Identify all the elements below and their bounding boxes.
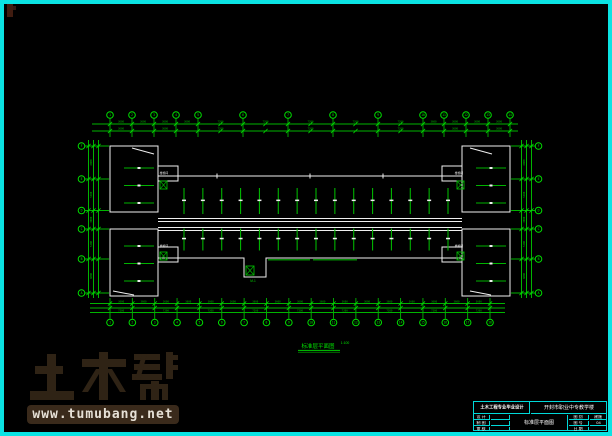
titleblock-meta-label: 图 号	[569, 421, 589, 426]
bottom-axis-label: 6	[221, 321, 223, 325]
dim-text: 3600	[431, 299, 438, 303]
titleblock-project-cell: 开封市职业中专教学楼	[531, 402, 606, 414]
dim-text: 3600	[319, 299, 326, 303]
dim-text: 3600	[230, 299, 237, 303]
bottom-axis-label: 2	[131, 321, 133, 325]
door-dash	[239, 200, 243, 202]
top-axis-label: 4	[175, 113, 177, 117]
stair-marker	[490, 185, 493, 187]
bottom-axis-label: 18	[488, 321, 492, 325]
bottom-axis-label: 4	[176, 321, 178, 325]
door-dash	[201, 200, 205, 202]
stair-tower-bottom-right	[462, 229, 510, 296]
stair-label-tr: 楼梯间	[455, 171, 464, 175]
dim-text: 7200	[431, 308, 438, 312]
dim-text: 7200	[342, 308, 349, 312]
dim-text: 3600	[162, 120, 169, 124]
top-axis-label: 12	[464, 113, 468, 117]
dim-text: 3600	[386, 299, 393, 303]
glyph-bang	[132, 352, 178, 400]
door-dash	[352, 200, 356, 202]
dim-text: 3600	[140, 120, 147, 124]
dim-text: 7200	[386, 308, 393, 312]
dim-text: 7200	[262, 120, 269, 124]
dim-text: 7200	[397, 127, 404, 131]
door-dash	[220, 238, 224, 240]
bottom-axis-label: 7	[243, 321, 245, 325]
titleblock-drawing-name-cell: 标准层平面图	[511, 415, 568, 430]
titleblock-meta-label: 日 期	[569, 427, 589, 432]
dim-text: 3600	[275, 299, 282, 303]
dim-text: 3600	[252, 299, 259, 303]
corner-logo-mark	[7, 4, 13, 17]
stair-tower-top-right	[462, 146, 510, 212]
dim-text: 3600	[476, 299, 483, 303]
dim-text: 7200	[252, 308, 259, 312]
dim-text: 3600	[452, 127, 459, 131]
dim-text: 7200	[217, 127, 224, 131]
right-axis-label: B	[538, 257, 540, 261]
dim-text: 6000	[522, 159, 526, 166]
door-dash	[352, 238, 356, 240]
south-wall-with-entrance	[158, 258, 462, 277]
door-dash	[446, 200, 450, 202]
door-dash	[408, 200, 412, 202]
left-axis-label: F	[81, 144, 83, 148]
stair-diagonal-tl	[132, 148, 154, 154]
glyph-tu	[30, 354, 74, 400]
bottom-axis-label: 11	[332, 321, 336, 325]
door-dash	[182, 238, 186, 240]
door-dash	[220, 200, 224, 202]
cad-viewer-screen: 标准层平面图 1:100 楼梯间 楼梯间 楼梯间 楼梯间 M-1 1234567…	[0, 0, 612, 436]
dim-text: 3600	[118, 299, 125, 303]
bottom-axis-label: 8	[266, 321, 268, 325]
stair-label-tl: 楼梯间	[160, 171, 169, 175]
top-axis-label: 5	[197, 113, 199, 117]
right-axis-label: A	[538, 291, 540, 295]
door-dash	[446, 238, 450, 240]
bottom-axis-label: 13	[376, 321, 380, 325]
title-block: 土木工程专业毕业设计 开封市职业中专教学楼 设 计 制 图 审 核 标准层平面图…	[473, 401, 607, 431]
bottom-axis-label: 17	[466, 321, 470, 325]
dim-text: 3600	[452, 120, 459, 124]
dim-text: 3000	[89, 216, 93, 223]
door-dash	[408, 238, 412, 240]
dim-text: 3600	[496, 120, 503, 124]
titleblock-meta-value	[590, 427, 606, 432]
dim-text: 7200	[297, 308, 304, 312]
dim-text: 6000	[522, 273, 526, 280]
right-axis-label: C	[538, 227, 540, 231]
dim-text: 3600	[162, 127, 169, 131]
stair-diagonal-bl	[113, 291, 134, 295]
dim-text: 7200	[397, 120, 404, 124]
titleblock-project: 开封市职业中专教学楼	[544, 405, 594, 410]
door-dash	[333, 200, 337, 202]
door-dash	[389, 238, 393, 240]
titleblock-row-value	[491, 427, 510, 432]
bottom-axis-label: 5	[198, 321, 200, 325]
titleblock-row-label: 设 计	[474, 415, 490, 420]
dim-text: 3600	[163, 299, 170, 303]
titleblock-meta-value: 建施	[590, 415, 606, 420]
stair-marker	[490, 245, 493, 247]
door-dash	[276, 200, 280, 202]
stair-marker	[490, 167, 493, 169]
left-axis-label: A	[81, 291, 83, 295]
dim-text: 3600	[409, 299, 416, 303]
dim-text: 3600	[474, 120, 481, 124]
dim-text: 5400	[89, 191, 93, 198]
building-outline	[110, 146, 510, 296]
dim-text: 7200	[118, 308, 125, 312]
top-axis-label: 14	[508, 113, 512, 117]
titleblock-meta-label: 图 别	[569, 415, 589, 420]
bottom-axis-label: 14	[399, 321, 403, 325]
dim-text: 3600	[453, 299, 460, 303]
dim-text: 3600	[185, 299, 192, 303]
plan-scale: 1:100	[341, 341, 350, 345]
dim-text: 3000	[522, 216, 526, 223]
titleblock-drawing-name: 标准层平面图	[524, 420, 554, 425]
stair-diagonal-tr	[470, 148, 492, 154]
green-details	[268, 260, 357, 353]
dim-text: 7200	[163, 308, 170, 312]
dim-text: 5400	[522, 241, 526, 248]
left-axis-label: D	[81, 209, 83, 213]
stair-tower-top-left	[110, 146, 158, 212]
door-dash	[427, 200, 431, 202]
titleblock-org: 土木工程专业毕业设计	[480, 405, 523, 409]
bottom-axis-label: 9	[288, 321, 290, 325]
right-axis-label: F	[538, 144, 540, 148]
dim-text: 7200	[217, 120, 224, 124]
left-axis-label: C	[81, 227, 83, 231]
stair-label-br: 楼梯间	[455, 244, 464, 248]
top-axis-label: 11	[442, 113, 446, 117]
door-dash	[276, 238, 280, 240]
bottom-axis-label: 1	[109, 321, 111, 325]
dim-text: 3600	[496, 127, 503, 131]
dim-text: 5400	[522, 191, 526, 198]
watermark-url: www.tumubang.net	[32, 407, 173, 422]
door-dash	[371, 200, 375, 202]
dim-text: 3600	[297, 299, 304, 303]
top-axis-label: 1	[109, 113, 111, 117]
dim-text: 3600	[364, 299, 371, 303]
dim-text: 3600	[430, 120, 437, 124]
door-dash	[389, 200, 393, 202]
door-dash	[257, 200, 261, 202]
right-axis-label: E	[538, 177, 540, 181]
door-dash	[314, 238, 318, 240]
top-axis-label: 2	[131, 113, 133, 117]
door-dash	[295, 200, 299, 202]
titleblock-row-label: 审 核	[474, 427, 490, 432]
dim-text: 7200	[307, 127, 314, 131]
entrance-label: M-1	[250, 279, 256, 283]
stair-tower-bottom-left	[110, 229, 158, 296]
dim-text: 7200	[352, 120, 359, 124]
dim-text: 7200	[208, 308, 215, 312]
door-dash	[427, 238, 431, 240]
bottom-axis-label: 15	[421, 321, 425, 325]
titleblock-row-value	[491, 421, 510, 426]
stair-marker	[138, 167, 141, 169]
top-axis-label: 10	[421, 113, 425, 117]
stair-marker	[138, 263, 141, 265]
top-axis-label: 9	[377, 113, 379, 117]
dim-text: 3600	[342, 299, 349, 303]
door-dash	[295, 238, 299, 240]
stair-marker	[490, 202, 493, 204]
top-axis-label: 3	[153, 113, 155, 117]
right-axis-label: D	[538, 209, 540, 213]
bottom-axis-label: 10	[309, 321, 313, 325]
left-axis-label: E	[81, 177, 83, 181]
top-axis-label: 13	[486, 113, 490, 117]
door-dash	[201, 238, 205, 240]
door-dash	[239, 238, 243, 240]
stair-label-bl: 楼梯间	[160, 244, 169, 248]
dim-text: 5400	[89, 241, 93, 248]
stair-marker	[490, 263, 493, 265]
top-axis-label: 6	[242, 113, 244, 117]
watermark-logo	[28, 352, 228, 407]
top-axis-label: 7	[287, 113, 289, 117]
stair-marker	[138, 245, 141, 247]
dim-text: 3600	[118, 127, 125, 131]
door-dash	[314, 200, 318, 202]
bottom-axis-label: 3	[154, 321, 156, 325]
stair-marker	[138, 202, 141, 204]
dim-text: 3600	[118, 120, 125, 124]
titleblock-row-label: 制 图	[474, 421, 490, 426]
stair-marker	[138, 280, 141, 282]
glyph-mu	[82, 352, 126, 400]
door-dash	[371, 238, 375, 240]
watermark-url-bar: www.tumubang.net	[27, 405, 179, 424]
stair-diagonal-br	[470, 291, 491, 295]
plan-title: 标准层平面图	[301, 342, 335, 350]
dim-text: 6000	[89, 159, 93, 166]
bottom-axis-label: 16	[443, 321, 447, 325]
dim-text: 7200	[476, 308, 483, 312]
top-axis-label: 8	[332, 113, 334, 117]
stair-marker	[138, 185, 141, 187]
bottom-axis-label: 12	[354, 321, 358, 325]
dim-text: 3600	[208, 299, 215, 303]
left-axis-label: B	[81, 257, 83, 261]
door-dash	[257, 238, 261, 240]
dim-text: 3600	[141, 299, 148, 303]
dim-text: 7200	[307, 120, 314, 124]
door-dash	[182, 200, 186, 202]
stair-marker	[490, 280, 493, 282]
titleblock-org-cell: 土木工程专业毕业设计	[474, 402, 530, 414]
dim-text: 3600	[184, 120, 191, 124]
titleblock-meta-value: 04	[590, 421, 606, 426]
door-dash	[333, 238, 337, 240]
titleblock-row-value	[491, 415, 510, 420]
dim-text: 6000	[89, 273, 93, 280]
